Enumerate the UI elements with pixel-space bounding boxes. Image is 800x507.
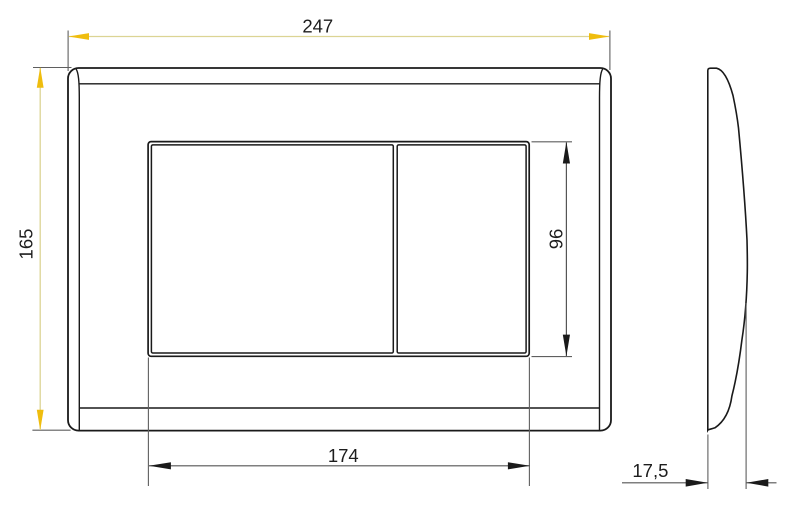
svg-text:165: 165 bbox=[16, 229, 37, 260]
svg-text:96: 96 bbox=[546, 229, 567, 250]
svg-text:17,5: 17,5 bbox=[632, 460, 668, 481]
svg-text:174: 174 bbox=[328, 445, 359, 466]
svg-text:247: 247 bbox=[302, 16, 333, 37]
